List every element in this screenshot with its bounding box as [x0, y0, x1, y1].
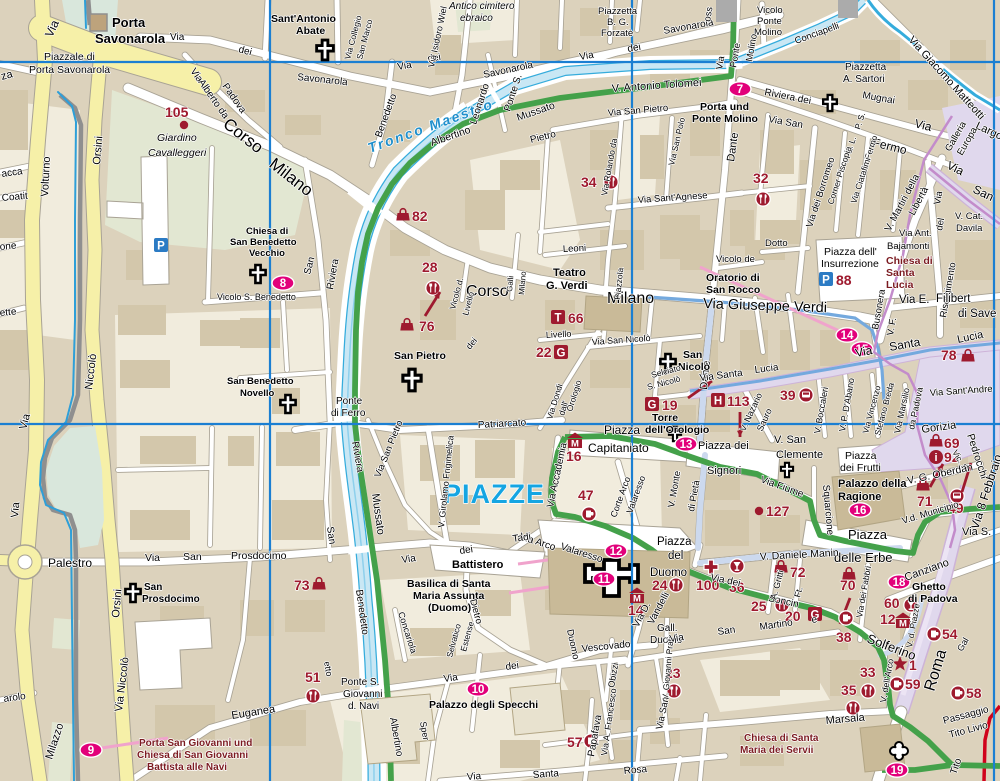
svg-text:Abate: Abate — [296, 25, 325, 37]
svg-text:Oratorio di: Oratorio di — [706, 272, 760, 284]
svg-text:Santa: Santa — [886, 267, 915, 279]
svg-text:Piazzetta: Piazzetta — [598, 6, 638, 17]
svg-text:Via: Via — [170, 32, 185, 43]
svg-text:Galli: Galli — [505, 275, 515, 292]
svg-text:76: 76 — [419, 318, 435, 334]
svg-text:7: 7 — [737, 84, 743, 96]
svg-text:16: 16 — [566, 448, 582, 464]
svg-text:Giovanni: Giovanni — [343, 689, 382, 700]
svg-text:38: 38 — [836, 629, 852, 645]
svg-text:Piazza dell': Piazza dell' — [824, 246, 877, 258]
svg-text:one: one — [0, 241, 17, 253]
svg-text:(Duomo): (Duomo) — [428, 602, 471, 614]
svg-text:39: 39 — [780, 387, 796, 403]
svg-text:Antico cimitero: Antico cimitero — [448, 1, 515, 12]
svg-text:105: 105 — [165, 104, 189, 120]
svg-text:12: 12 — [880, 611, 896, 627]
svg-text:Lucia: Lucia — [886, 279, 914, 291]
svg-text:19: 19 — [891, 765, 904, 777]
svg-text:33: 33 — [860, 664, 876, 680]
svg-text:i: i — [934, 452, 937, 464]
svg-text:Via: Via — [669, 632, 685, 645]
svg-text:Battistero: Battistero — [452, 559, 504, 571]
svg-text:28: 28 — [422, 259, 438, 275]
svg-text:d. Navi: d. Navi — [348, 701, 379, 712]
svg-text:Forzatè: Forzatè — [601, 28, 633, 39]
svg-text:Signori: Signori — [707, 465, 741, 477]
svg-text:Porta und: Porta und — [700, 101, 749, 113]
svg-text:19: 19 — [662, 397, 678, 413]
svg-text:Vicolo de: Vicolo de — [716, 254, 755, 265]
svg-text:Insurrezione: Insurrezione — [821, 258, 879, 270]
svg-text:Via S.: Via S. — [962, 526, 991, 538]
svg-text:Ponte: Ponte — [757, 16, 782, 27]
svg-text:Porta Savonarola: Porta Savonarola — [29, 64, 110, 76]
svg-text:Ponte S.: Ponte S. — [341, 677, 379, 688]
svg-text:72: 72 — [790, 564, 806, 580]
svg-text:Piazza: Piazza — [604, 423, 640, 437]
svg-text:Santa: Santa — [532, 768, 559, 781]
svg-text:Davila: Davila — [956, 223, 983, 234]
svg-text:B. G.: B. G. — [607, 17, 629, 28]
svg-text:Via E.: Via E. — [899, 294, 929, 306]
svg-text:Piazzale di: Piazzale di — [44, 51, 95, 63]
svg-text:66: 66 — [568, 310, 584, 326]
svg-text:11: 11 — [598, 574, 611, 586]
svg-text:Palazzo della: Palazzo della — [838, 478, 907, 490]
svg-text:dell'Orologio: dell'Orologio — [645, 424, 709, 436]
svg-text:ette: ette — [0, 307, 17, 319]
svg-text:Piazza: Piazza — [848, 527, 888, 542]
svg-text:di Save: di Save — [958, 308, 996, 320]
svg-text:14: 14 — [841, 330, 854, 342]
svg-text:Piazza dei: Piazza dei — [698, 440, 749, 452]
svg-text:Teatro: Teatro — [553, 267, 586, 279]
svg-text:Giardino: Giardino — [157, 132, 197, 144]
svg-text:Vicolo S. Benedetto: Vicolo S. Benedetto — [217, 292, 296, 302]
svg-text:H: H — [714, 396, 722, 408]
svg-text:127: 127 — [766, 503, 790, 519]
svg-text:V. San: V. San — [774, 434, 806, 446]
svg-text:delle Erbe: delle Erbe — [834, 550, 893, 565]
svg-text:Ghetto: Ghetto — [912, 581, 946, 593]
svg-text:G: G — [557, 348, 566, 360]
svg-text:Dotto: Dotto — [765, 238, 788, 249]
svg-text:Piazzetta: Piazzetta — [845, 62, 887, 73]
svg-text:Basilica di Santa: Basilica di Santa — [407, 578, 491, 590]
svg-text:34: 34 — [581, 174, 597, 190]
svg-text:18: 18 — [893, 577, 906, 589]
svg-text:8: 8 — [280, 278, 287, 290]
svg-text:Orsini: Orsini — [91, 136, 105, 166]
svg-text:Chiesa di Santa: Chiesa di Santa — [744, 733, 819, 744]
svg-text:dei: dei — [505, 660, 520, 673]
svg-text:Piazza: Piazza — [845, 450, 877, 462]
svg-text:Savonarola: Savonarola — [95, 31, 166, 46]
svg-text:Bajamonti: Bajamonti — [887, 241, 929, 252]
svg-text:dei: dei — [459, 544, 474, 557]
svg-text:PIAZZE: PIAZZE — [443, 479, 545, 509]
svg-text:G. Verdi: G. Verdi — [546, 280, 588, 292]
svg-text:Livello: Livello — [546, 329, 572, 340]
svg-text:Prosdocimo: Prosdocimo — [142, 594, 200, 605]
svg-text:Ponte Molino: Ponte Molino — [692, 113, 758, 125]
svg-text:Chiesa di: Chiesa di — [886, 255, 933, 267]
svg-text:Via: Via — [9, 501, 22, 519]
svg-text:Battista alle Navi: Battista alle Navi — [147, 762, 227, 773]
svg-text:57: 57 — [567, 734, 583, 750]
svg-text:113: 113 — [727, 393, 750, 409]
svg-text:A. Sartori: A. Sartori — [843, 74, 885, 85]
svg-text:47: 47 — [578, 487, 594, 503]
svg-text:Capitaniato: Capitaniato — [588, 441, 649, 455]
svg-text:San: San — [183, 551, 202, 563]
svg-text:35: 35 — [841, 682, 857, 698]
svg-text:78: 78 — [941, 347, 957, 363]
svg-text:Filibert: Filibert — [936, 293, 971, 305]
svg-text:Porta San Giovanni und: Porta San Giovanni und — [139, 738, 252, 749]
svg-text:V. Cat.: V. Cat. — [955, 211, 983, 222]
svg-text:60: 60 — [884, 595, 900, 611]
svg-text:Palestro: Palestro — [48, 556, 92, 570]
svg-text:58: 58 — [966, 685, 982, 701]
svg-text:Vicolo: Vicolo — [757, 5, 783, 16]
svg-text:88: 88 — [836, 272, 852, 288]
svg-text:San Benedetto: San Benedetto — [230, 237, 297, 248]
svg-text:59: 59 — [905, 676, 921, 692]
svg-text:Maria dei Servii: Maria dei Servii — [740, 745, 814, 756]
svg-text:25: 25 — [751, 598, 767, 614]
svg-text:M: M — [899, 619, 907, 630]
svg-text:Chiesa di San Giovanni: Chiesa di San Giovanni — [137, 750, 248, 761]
svg-text:Rosa: Rosa — [623, 764, 648, 777]
svg-text:dei: dei — [627, 42, 642, 55]
svg-text:P: P — [157, 241, 165, 253]
svg-text:Leoni: Leoni — [563, 243, 587, 255]
svg-text:Sant'Antonio: Sant'Antonio — [271, 13, 336, 25]
svg-text:Ragione: Ragione — [838, 491, 881, 503]
svg-text:Via Ant.: Via Ant. — [899, 228, 932, 239]
svg-text:12: 12 — [610, 546, 623, 558]
svg-text:Via: Via — [854, 343, 874, 360]
svg-text:Orsini: Orsini — [110, 589, 124, 619]
svg-text:54: 54 — [942, 626, 958, 642]
svg-text:P: P — [822, 275, 830, 287]
svg-text:San Benedetto: San Benedetto — [227, 376, 294, 387]
svg-text:Coatit: Coatit — [1, 191, 28, 204]
svg-text:Prosdocimo: Prosdocimo — [231, 550, 287, 562]
svg-text:Porta: Porta — [112, 15, 146, 30]
svg-text:70: 70 — [840, 577, 856, 593]
svg-text:di Padova: di Padova — [908, 593, 958, 605]
svg-text:San Pietro: San Pietro — [394, 350, 446, 362]
svg-text:San: San — [144, 582, 162, 593]
svg-text:Chiesa di: Chiesa di — [246, 226, 288, 237]
svg-text:Torre: Torre — [652, 412, 678, 424]
svg-text:Vecchio: Vecchio — [249, 248, 285, 259]
svg-text:dei Frutti: dei Frutti — [840, 462, 881, 474]
svg-text:del: del — [934, 217, 947, 231]
svg-text:Clemente: Clemente — [776, 449, 823, 461]
svg-text:Volturno: Volturno — [39, 156, 53, 197]
svg-text:Duomo: Duomo — [650, 567, 687, 579]
svg-text:Cavalleggeri: Cavalleggeri — [148, 147, 207, 159]
svg-text:82: 82 — [412, 208, 428, 224]
svg-text:73: 73 — [294, 577, 310, 593]
svg-text:Nicolò: Nicolò — [678, 361, 710, 373]
svg-text:T: T — [554, 313, 561, 325]
svg-text:Via: Via — [466, 771, 481, 781]
svg-text:22: 22 — [536, 344, 552, 360]
svg-text:24: 24 — [652, 577, 668, 593]
svg-text:Novello: Novello — [240, 388, 275, 399]
svg-text:Via: Via — [145, 552, 160, 564]
svg-text:Ponte: Ponte — [336, 396, 363, 407]
svg-text:ebraico: ebraico — [460, 13, 493, 24]
svg-text:13: 13 — [680, 439, 693, 451]
svg-text:di Ferro: di Ferro — [331, 408, 366, 419]
svg-text:Palazzo degli Specchi: Palazzo degli Specchi — [429, 699, 538, 711]
svg-text:San Rocco: San Rocco — [706, 284, 760, 296]
svg-text:San: San — [683, 349, 702, 361]
svg-text:Via: Via — [443, 672, 459, 685]
svg-text:Via: Via — [401, 553, 417, 566]
svg-text:del: del — [668, 550, 683, 562]
svg-text:16: 16 — [854, 505, 867, 517]
svg-text:10: 10 — [472, 684, 485, 696]
svg-text:32: 32 — [753, 170, 769, 186]
svg-text:51: 51 — [305, 669, 321, 685]
svg-text:G: G — [648, 400, 657, 412]
svg-text:9: 9 — [88, 745, 94, 757]
svg-text:Piazza: Piazza — [657, 536, 692, 548]
